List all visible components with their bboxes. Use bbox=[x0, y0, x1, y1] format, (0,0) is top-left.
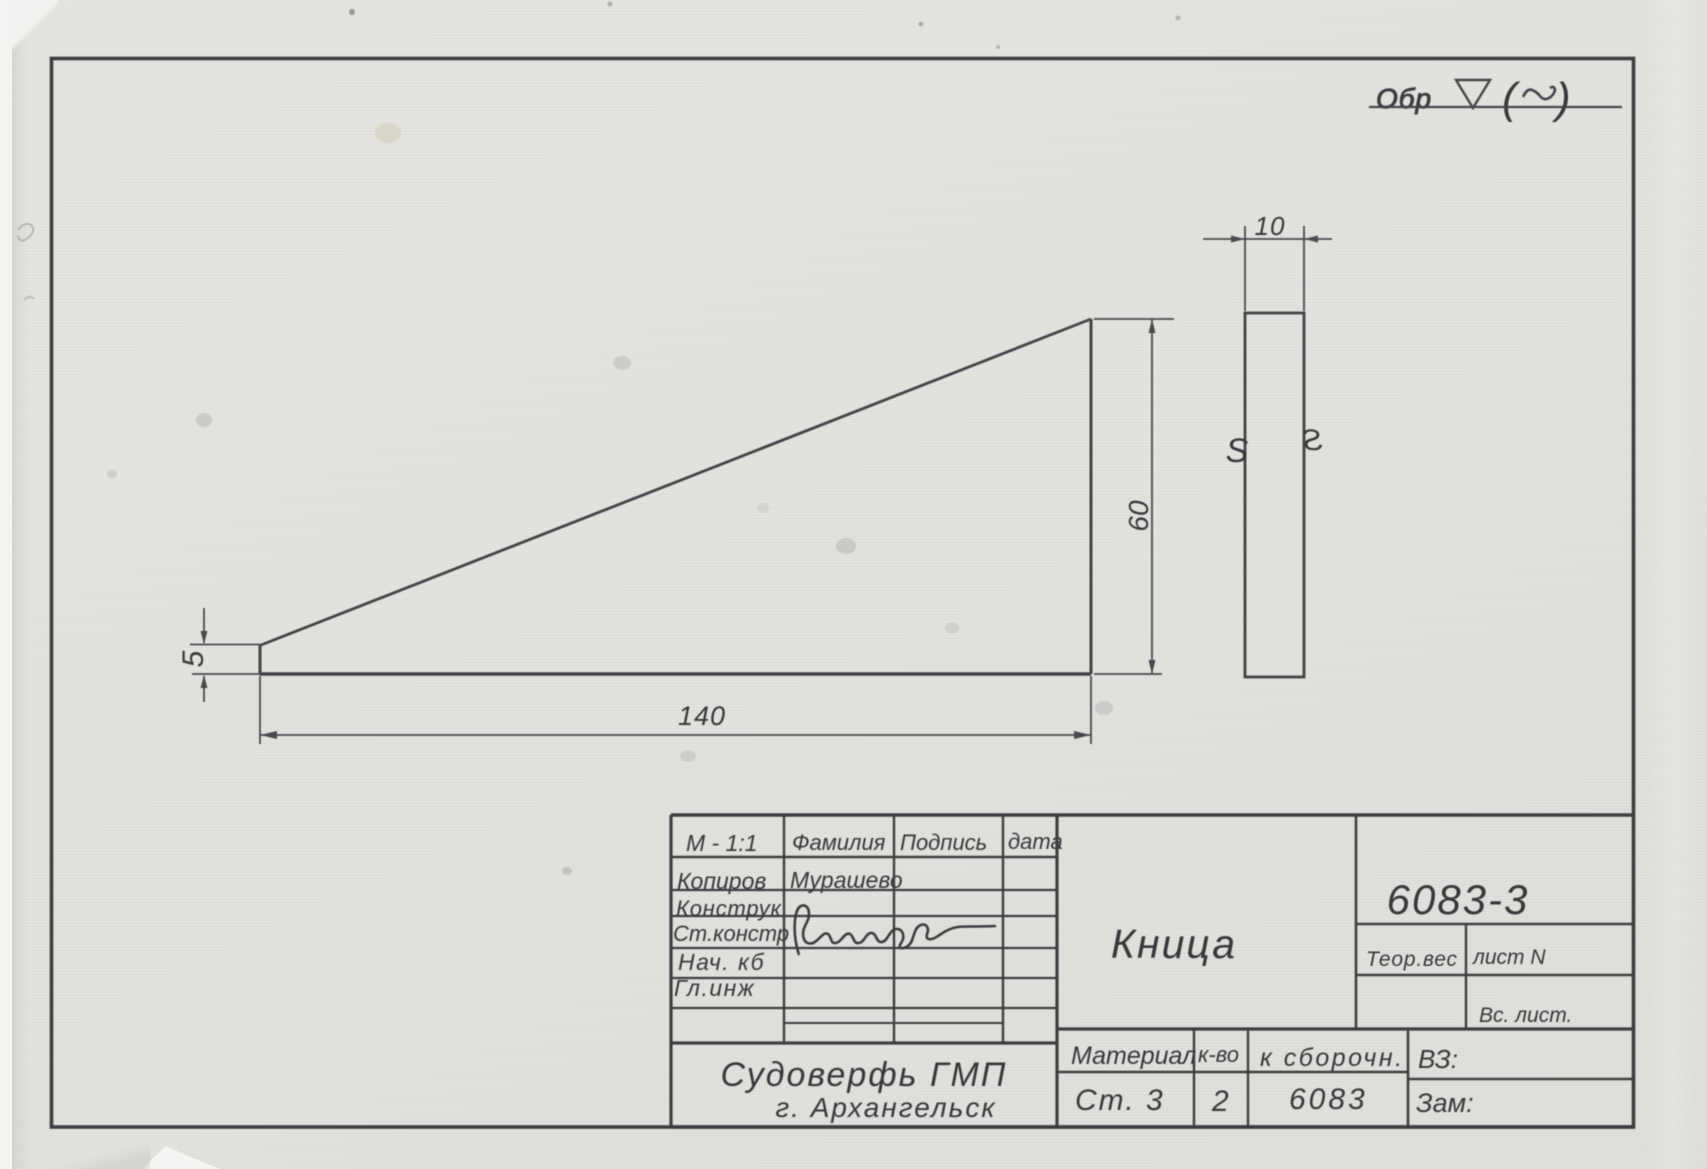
svg-text:Ст.констр: Ст.констр bbox=[673, 921, 789, 946]
svg-text:6083: 6083 bbox=[1289, 1083, 1368, 1116]
svg-text:Материал: Материал bbox=[1071, 1042, 1196, 1070]
svg-text:Мурашево: Мурашево bbox=[790, 867, 903, 893]
svg-text:Обр: Обр bbox=[1376, 83, 1432, 114]
svg-text:S: S bbox=[1303, 424, 1323, 457]
svg-text:(: ( bbox=[1502, 74, 1521, 123]
svg-text:М - 1:1: М - 1:1 bbox=[686, 830, 758, 856]
svg-text:к-во: к-во bbox=[1198, 1042, 1239, 1067]
svg-text:Подпись: Подпись bbox=[900, 830, 987, 855]
svg-text:Судоверфь ГМП: Судоверфь ГМП bbox=[721, 1056, 1008, 1094]
svg-text:2: 2 bbox=[1211, 1085, 1229, 1118]
svg-text:Конструк: Конструк bbox=[676, 896, 782, 921]
svg-text:Фамилия: Фамилия bbox=[792, 830, 886, 855]
svg-text:к сборочн.: к сборочн. bbox=[1260, 1044, 1405, 1072]
svg-text:ВЗ:: ВЗ: bbox=[1418, 1044, 1458, 1074]
svg-text:Зам:: Зам: bbox=[1416, 1088, 1474, 1118]
svg-text:S: S bbox=[1226, 432, 1249, 470]
svg-text:лист N: лист N bbox=[1472, 946, 1546, 969]
svg-text:Ст. 3: Ст. 3 bbox=[1075, 1084, 1165, 1117]
svg-text:Копиров: Копиров bbox=[677, 868, 766, 894]
svg-text:5: 5 bbox=[177, 650, 210, 667]
svg-text:г. Архангельск: г. Архангельск bbox=[775, 1092, 996, 1123]
svg-text:): ) bbox=[1551, 74, 1571, 123]
svg-text:Вс. лист.: Вс. лист. bbox=[1479, 1004, 1572, 1027]
svg-text:10: 10 bbox=[1255, 211, 1286, 241]
svg-text:60: 60 bbox=[1123, 500, 1154, 532]
svg-text:6083-3: 6083-3 bbox=[1387, 876, 1530, 923]
svg-text:Кница: Кница bbox=[1111, 921, 1237, 967]
svg-text:Гл.инж: Гл.инж bbox=[674, 975, 755, 1001]
svg-text:Нач. кб: Нач. кб bbox=[678, 949, 765, 975]
svg-text:140: 140 bbox=[678, 701, 726, 731]
svg-text:дата: дата bbox=[1008, 829, 1063, 854]
svg-text:Теор.вес: Теор.вес bbox=[1366, 948, 1458, 971]
